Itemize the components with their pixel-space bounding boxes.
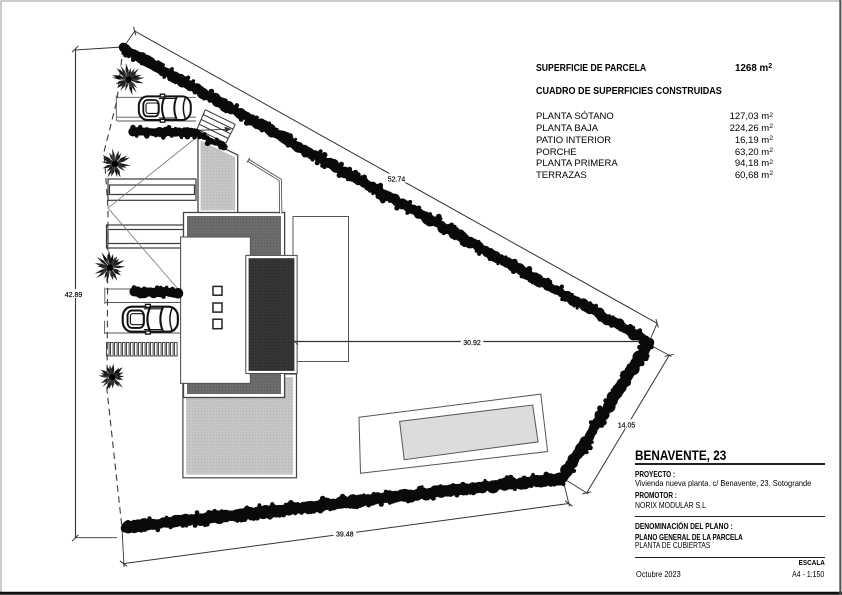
svg-text:30.92: 30.92 — [463, 340, 481, 347]
svg-text:52.74: 52.74 — [388, 177, 406, 184]
svg-text:39.48: 39.48 — [336, 532, 354, 539]
svg-text:14.05: 14.05 — [618, 422, 636, 429]
svg-text:42.89: 42.89 — [65, 292, 83, 299]
